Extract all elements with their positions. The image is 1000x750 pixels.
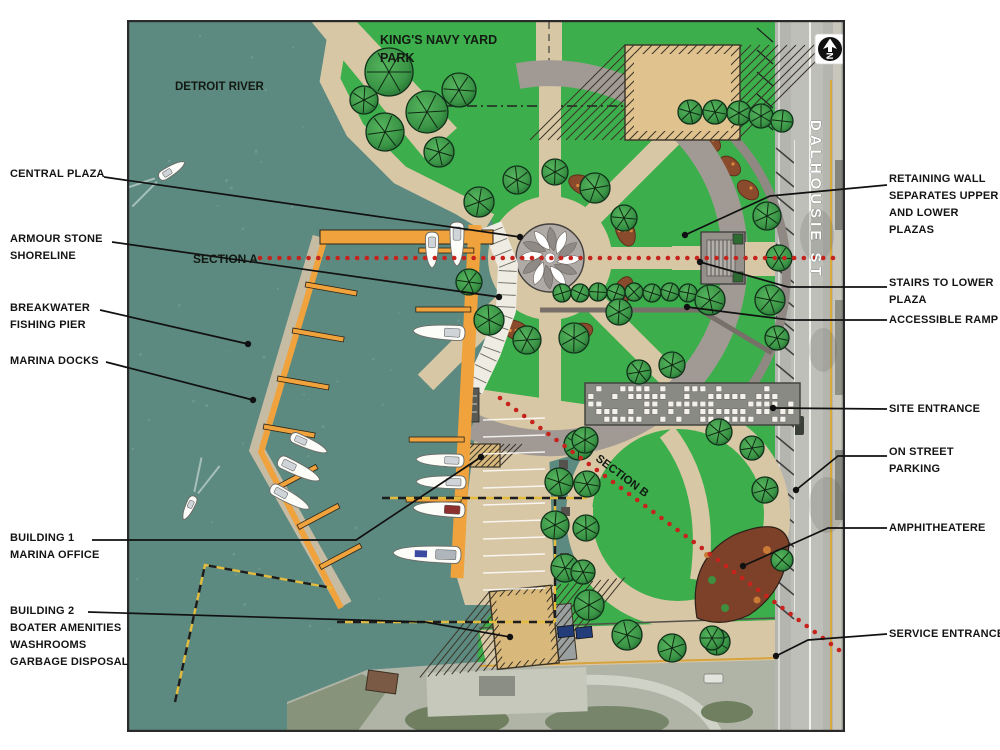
tree-icon <box>574 471 600 497</box>
section-dot <box>530 256 535 261</box>
section-dot <box>780 606 785 611</box>
tree-icon <box>727 101 751 125</box>
section-dot <box>743 256 748 261</box>
tree-icon <box>580 173 610 203</box>
tree-icon <box>765 326 789 350</box>
callout-line: CENTRAL PLAZA <box>10 166 105 183</box>
tree-icon <box>442 73 476 107</box>
section-dot <box>607 256 612 261</box>
tree-icon <box>424 137 454 167</box>
section-dot <box>675 528 680 533</box>
section-dot <box>491 256 496 261</box>
section-dot <box>506 402 511 407</box>
tree-icon <box>589 283 607 301</box>
section-dot <box>394 256 399 261</box>
section-dot <box>666 256 671 261</box>
section-dot <box>636 256 641 261</box>
section-dot <box>659 516 664 521</box>
tree-icon <box>456 269 482 295</box>
section-dot <box>740 576 745 581</box>
section-dot <box>635 498 640 503</box>
section-dot <box>619 486 624 491</box>
section-dot <box>667 522 672 527</box>
section-dot <box>792 256 797 261</box>
section-dot <box>530 420 535 425</box>
north-letter: N <box>824 53 835 60</box>
tree-icon <box>706 419 732 445</box>
tree-icon <box>350 86 378 114</box>
section-dot <box>704 256 709 261</box>
tree-icon <box>625 283 643 301</box>
section-dot <box>578 456 583 461</box>
tree-icon <box>406 91 448 133</box>
section-dot <box>287 256 292 261</box>
section-dot <box>316 256 321 261</box>
tree-icon <box>611 205 637 231</box>
section-dot <box>365 256 370 261</box>
section-dot <box>724 564 729 569</box>
section-dot <box>538 426 543 431</box>
tree-icon <box>513 326 541 354</box>
section-dot <box>691 540 696 545</box>
section-dot <box>384 256 389 261</box>
tree-icon <box>612 620 642 650</box>
callout-line: BOATER AMENITIES <box>10 620 129 637</box>
callout-marina-docks: MARINA DOCKS <box>10 353 99 370</box>
section-dot <box>603 474 608 479</box>
section-dot <box>462 256 467 261</box>
section-a-label: SECTION A <box>193 252 258 266</box>
tree-icon <box>753 202 781 230</box>
section-dot <box>627 492 632 497</box>
section-dot <box>568 256 573 261</box>
tree-icon <box>503 166 531 194</box>
site-entrance-walk <box>585 383 800 425</box>
tree-icon <box>572 427 598 453</box>
callout-amphitheatere: AMPHITHEATERE <box>889 520 986 537</box>
section-dot <box>306 256 311 261</box>
section-dot <box>442 256 447 261</box>
section-dot <box>716 558 721 563</box>
tree-icon <box>366 113 404 151</box>
section-dot <box>724 256 729 261</box>
callout-armour-stone-shoreline: ARMOUR STONESHORELINE <box>10 231 103 265</box>
section-dot <box>734 256 739 261</box>
section-dot <box>788 612 793 617</box>
section-dot <box>570 450 575 455</box>
callout-line: AMPHITHEATERE <box>889 520 986 537</box>
callout-building-2: BUILDING 2BOATER AMENITIESWASHROOMSGARBA… <box>10 603 129 671</box>
tree-icon <box>700 626 724 650</box>
section-dot <box>355 256 360 261</box>
section-dot <box>796 618 801 623</box>
callout-line: ARMOUR STONE <box>10 231 103 248</box>
callout-on-street-parking: ON STREETPARKING <box>889 444 954 478</box>
park-name-line1: KING'S NAVY YARD <box>380 33 497 47</box>
section-dot <box>695 256 700 261</box>
section-dot <box>829 642 834 647</box>
tree-icon <box>542 159 568 185</box>
tree-icon <box>771 549 793 571</box>
callout-line: SHORELINE <box>10 248 103 265</box>
tree-icon <box>695 285 725 315</box>
section-dot <box>277 256 282 261</box>
callout-line: BUILDING 1 <box>10 530 100 547</box>
tree-icon <box>679 284 697 302</box>
section-dot <box>267 256 272 261</box>
section-dot <box>514 408 519 413</box>
callout-line: AND LOWER <box>889 205 999 222</box>
section-dot <box>335 256 340 261</box>
callout-central-plaza: CENTRAL PLAZA <box>10 166 105 183</box>
section-dot <box>510 256 515 261</box>
tree-icon <box>749 104 773 128</box>
callout-line: FISHING PIER <box>10 317 90 334</box>
section-dot <box>554 438 559 443</box>
section-dot <box>522 414 527 419</box>
section-dot <box>782 256 787 261</box>
tree-icon <box>545 468 573 496</box>
section-dot <box>763 256 768 261</box>
section-dot <box>549 256 554 261</box>
section-dot <box>258 256 263 261</box>
tree-icon <box>573 515 599 541</box>
callout-line: PLAZAS <box>889 222 999 239</box>
section-dot <box>683 534 688 539</box>
section-dot <box>586 462 591 467</box>
section-dot <box>546 432 551 437</box>
tree-icon <box>464 187 494 217</box>
section-dot <box>756 588 761 593</box>
section-dot <box>643 504 648 509</box>
section-dot <box>403 256 408 261</box>
section-dot <box>685 256 690 261</box>
callout-line: STAIRS TO LOWER <box>889 275 994 292</box>
callout-line: PARKING <box>889 461 954 478</box>
section-dot <box>837 648 842 653</box>
section-dot <box>764 594 769 599</box>
section-dot <box>481 256 486 261</box>
street-name-label: DALHOUSIE ST <box>807 120 824 280</box>
section-dot <box>699 546 704 551</box>
section-dot <box>374 256 379 261</box>
north-dock <box>320 230 493 244</box>
tree-icon <box>541 511 569 539</box>
section-dot <box>656 256 661 261</box>
section-dot <box>617 256 622 261</box>
tree-icon <box>740 436 764 460</box>
tree-icon <box>703 100 727 124</box>
tree-icon <box>559 323 589 353</box>
tree-icon <box>755 285 785 315</box>
section-dot <box>772 600 777 605</box>
tree-icon <box>574 590 604 620</box>
tree-icon <box>659 352 685 378</box>
section-dot <box>714 256 719 261</box>
site-plan-page: DETROIT RIVER KING'S NAVY YARD PARK SECT… <box>0 0 1000 750</box>
section-dot <box>804 624 809 629</box>
callout-line: GARBAGE DISPOSAL <box>10 654 129 671</box>
callout-stairs-to-lower-plaza: STAIRS TO LOWERPLAZA <box>889 275 994 309</box>
section-dot <box>821 636 826 641</box>
callout-line: BREAKWATER <box>10 300 90 317</box>
section-dot <box>559 256 564 261</box>
tree-icon <box>571 560 595 584</box>
callout-accessible-ramp: ACCESSIBLE RAMP <box>889 312 998 329</box>
tree-icon <box>678 100 702 124</box>
section-dot <box>452 256 457 261</box>
section-dot <box>646 256 651 261</box>
section-dot <box>675 256 680 261</box>
section-dot <box>651 510 656 515</box>
tree-icon <box>606 299 632 325</box>
tree-icon <box>571 284 589 302</box>
section-dot <box>708 552 713 557</box>
section-dot <box>562 444 567 449</box>
section-dot <box>498 396 503 401</box>
section-dot <box>802 256 807 261</box>
callout-building-1: BUILDING 1MARINA OFFICE <box>10 530 100 564</box>
section-dot <box>831 256 836 261</box>
north-arrow: N <box>815 34 845 64</box>
section-dot <box>598 256 603 261</box>
tree-icon <box>643 284 661 302</box>
callout-line: BUILDING 2 <box>10 603 129 620</box>
callout-line: SERVICE ENTRANCE <box>889 626 1000 643</box>
section-dot <box>611 480 616 485</box>
callout-line: RETAINING WALL <box>889 171 999 188</box>
callout-service-entrance: SERVICE ENTRANCE <box>889 626 1000 643</box>
tree-icon <box>474 305 504 335</box>
callout-line: ON STREET <box>889 444 954 461</box>
section-dot <box>753 256 758 261</box>
callout-line: MARINA DOCKS <box>10 353 99 370</box>
section-dot <box>500 256 505 261</box>
section-dot <box>578 256 583 261</box>
callout-line: ACCESSIBLE RAMP <box>889 312 998 329</box>
section-dot <box>520 256 525 261</box>
section-dot <box>345 256 350 261</box>
callout-breakwater-fishing-pier: BREAKWATERFISHING PIER <box>10 300 90 334</box>
tree-icon <box>658 634 686 662</box>
callout-retaining-wall: RETAINING WALLSEPARATES UPPERAND LOWERPL… <box>889 171 999 239</box>
section-dot <box>595 468 600 473</box>
section-dot <box>297 256 302 261</box>
tree-icon <box>627 360 651 384</box>
callout-line: PLAZA <box>889 292 994 309</box>
callout-line: WASHROOMS <box>10 637 129 654</box>
section-dot <box>471 256 476 261</box>
section-dot <box>627 256 632 261</box>
section-dot <box>748 582 753 587</box>
section-dot <box>413 256 418 261</box>
section-dot <box>772 256 777 261</box>
tree-icon <box>771 110 793 132</box>
section-dot <box>433 256 438 261</box>
tree-icon <box>766 245 792 271</box>
callout-line: SEPARATES UPPER <box>889 188 999 205</box>
callout-line: MARINA OFFICE <box>10 547 100 564</box>
tree-icon <box>752 477 778 503</box>
section-dot <box>588 256 593 261</box>
section-dot <box>812 630 817 635</box>
section-dot <box>423 256 428 261</box>
park-name-line2: PARK <box>380 51 415 65</box>
callout-line: SITE ENTRANCE <box>889 401 980 418</box>
detroit-river-label: DETROIT RIVER <box>175 81 265 93</box>
tree-icon <box>661 283 679 301</box>
tree-icon <box>553 284 571 302</box>
callout-site-entrance: SITE ENTRANCE <box>889 401 980 418</box>
section-dot <box>539 256 544 261</box>
site-plan-map: DETROIT RIVER KING'S NAVY YARD PARK SECT… <box>127 20 845 732</box>
section-dot <box>326 256 331 261</box>
section-dot <box>732 570 737 575</box>
